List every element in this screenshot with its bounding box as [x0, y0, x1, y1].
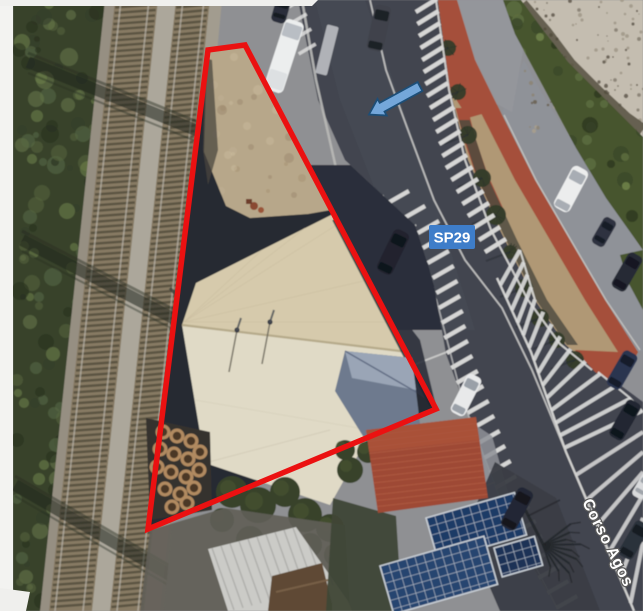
svg-text:SP29: SP29 — [434, 230, 471, 247]
